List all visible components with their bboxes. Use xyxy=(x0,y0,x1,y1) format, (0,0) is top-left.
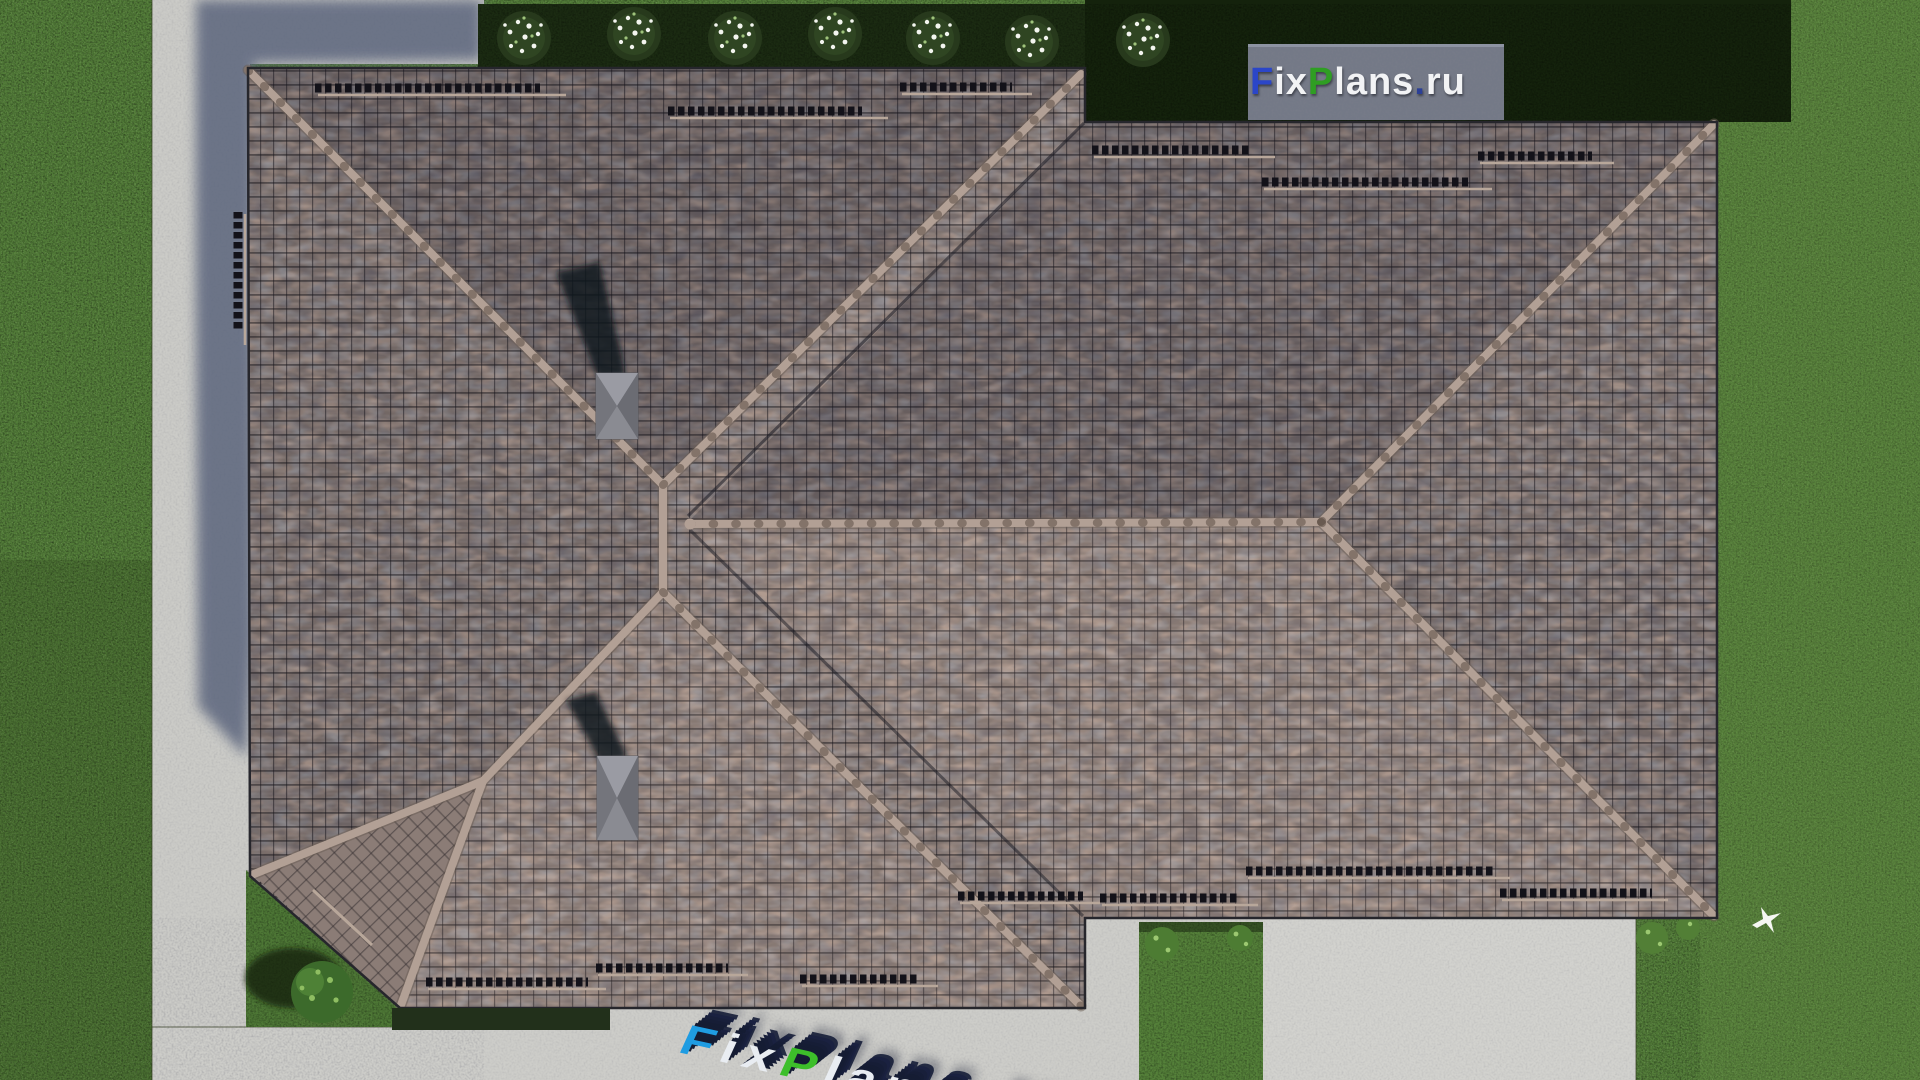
brand-letter: . xyxy=(1414,61,1426,103)
foundation-hedge-strip xyxy=(392,1008,610,1030)
scene-canvas xyxy=(0,0,1920,1080)
brand-letter: P xyxy=(1308,61,1334,103)
brand-letter: ix xyxy=(1274,61,1308,103)
aerial-roof-render: FixPlans.ru FixPlans.ru xyxy=(0,0,1920,1080)
brand-plate-text: FixPlans.ru xyxy=(1250,46,1502,118)
roof xyxy=(230,50,1730,1030)
brand-letter: F xyxy=(1250,61,1274,103)
bush xyxy=(291,961,353,1023)
brand-letter: lans xyxy=(1334,61,1414,103)
brand-letter: ru xyxy=(1426,61,1466,103)
